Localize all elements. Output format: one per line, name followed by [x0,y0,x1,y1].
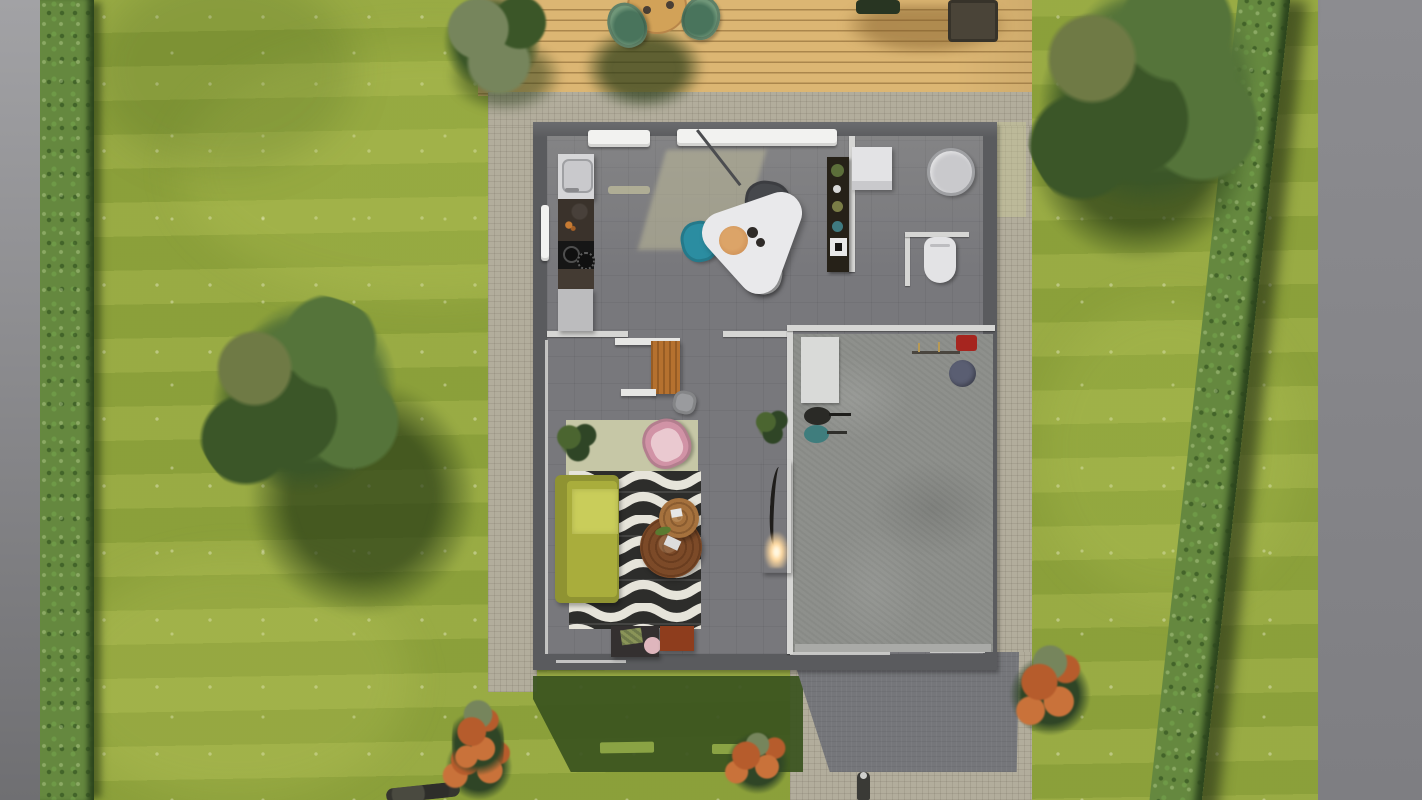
red-wall-box[interactable] [956,335,977,351]
window-top-1[interactable] [588,130,650,147]
potted-plant-right[interactable] [753,406,791,448]
lawn-light-patch [1040,300,1300,600]
living-wall-highlight [545,340,548,654]
apron-left [488,126,537,692]
vacuum-teal[interactable] [804,425,829,443]
shelf-decor-white [833,185,841,193]
dining-table[interactable] [693,181,815,303]
apron-sunlit-tint [996,122,1026,217]
wall-shelf-2[interactable] [621,389,656,396]
shelf-decor-olive [832,201,843,212]
shower-basin[interactable] [927,148,975,196]
console-pink-hat [644,637,661,654]
toilet-seat-line [930,244,950,247]
garage-sill [795,644,991,652]
sunlight-strip [608,186,650,194]
apron-top [488,92,1032,126]
cup-dark [747,227,758,238]
washing-machine-front [852,181,892,190]
bush-apron-corner[interactable] [452,686,504,800]
blue-bucket[interactable] [949,360,976,387]
kitchen-base-cabinet[interactable] [558,289,593,331]
vacuum-teal-hose [827,431,847,434]
tool-handle [938,342,940,352]
wc-wall-vertical [905,232,910,286]
cooktop-burner [577,252,595,270]
shelf-frame-center [835,243,842,251]
shadow-light-slit [600,742,654,754]
sofa-throw [572,489,618,534]
deck-cup [666,1,674,9]
kitchen-counter-dark[interactable] [558,199,594,241]
shelf-plant [831,164,844,177]
partition-kitchen-living [547,331,628,337]
left-boundary-strip [0,0,44,800]
desk[interactable] [651,341,680,394]
partition-bath-garage [787,325,995,331]
garage-mat[interactable] [801,337,839,403]
partition-dining-living [723,331,789,337]
sink-faucet [565,188,579,192]
tree-left[interactable] [193,293,413,515]
deck-side-furniture[interactable] [948,0,998,42]
deck-cup [643,6,651,14]
plate[interactable] [719,226,748,255]
cup-dark [756,238,765,247]
window-left[interactable] [541,205,549,261]
driveway [791,652,1019,772]
console-green-box [620,628,643,646]
bottom-wall-highlight [556,660,626,663]
render-viewport [0,0,1422,800]
left-hedge[interactable] [40,0,94,800]
tool-handle [918,343,920,352]
statue-highlight [860,772,867,779]
houseplant-left[interactable] [552,420,602,465]
rust-cabinet[interactable] [660,626,694,651]
kitchen-counter-dark-2[interactable] [558,269,594,289]
bush-bottom-right[interactable] [1006,630,1094,760]
shelf-decor-teal [832,221,843,232]
vacuum-black[interactable] [804,407,831,425]
bottom-wall-highlight [790,652,890,655]
right-boundary-area [1318,0,1422,800]
deck-lounger[interactable] [856,0,900,14]
fire-flame [764,532,789,568]
vacuum-black-hose [829,413,851,416]
bush-bottom-center[interactable] [710,726,805,800]
